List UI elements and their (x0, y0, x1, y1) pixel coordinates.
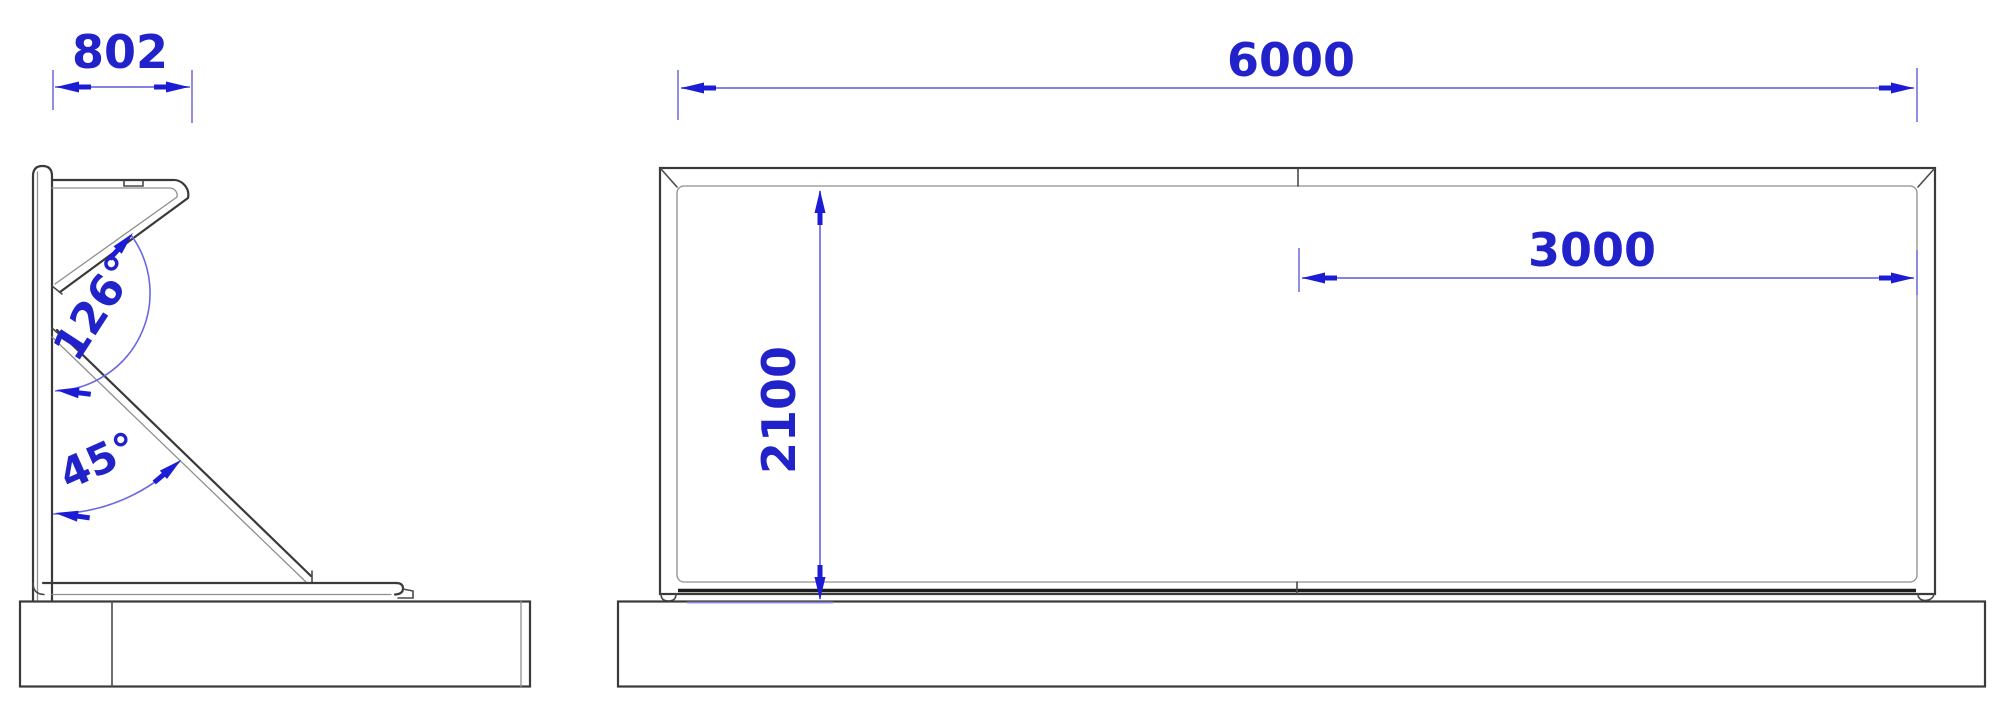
dim-3000-label: 3000 (1528, 223, 1656, 277)
technical-drawing-svg: 802 126° 45° (0, 0, 2000, 705)
dim-802-arrow-right (154, 82, 189, 93)
dim-3000-arrow-right (1879, 273, 1914, 284)
drawing-canvas: 802 126° 45° (0, 0, 2000, 705)
side-foot-end-cap (395, 583, 403, 595)
front-frame-chamfer-topright (1918, 169, 1934, 187)
dim-3000: 3000 (1299, 223, 1917, 295)
dim-6000-arrow-left (681, 83, 716, 94)
front-frame-inner (677, 186, 1917, 582)
dim-802-arrow-left (56, 82, 91, 93)
dim-6000: 6000 (678, 33, 1917, 122)
side-arm-post-joint (52, 286, 62, 294)
side-foot (33, 583, 413, 598)
dim-2100-arrow-top (815, 190, 826, 225)
dim-802-label: 802 (72, 25, 168, 79)
side-post (33, 166, 52, 601)
front-view: 6000 3000 2100 (618, 33, 1985, 687)
dim-126deg-arrow-lower (55, 385, 91, 400)
side-top-arm-clamp-notch (124, 181, 143, 186)
front-frame-outer (660, 168, 1935, 594)
dim-45deg: 45° (52, 422, 185, 523)
side-base-outline (20, 602, 530, 687)
front-frame-chamfer-topleft (661, 169, 677, 187)
front-frame (660, 168, 1935, 601)
dim-45deg-label: 45° (52, 422, 145, 499)
dim-802: 802 (53, 25, 192, 123)
side-foot-post-corner (33, 583, 44, 595)
dim-3000-arrow-left (1302, 273, 1337, 284)
dim-45deg-arrow-lower (54, 508, 90, 524)
side-post-outline (33, 166, 52, 601)
dim-6000-label: 6000 (1227, 33, 1355, 87)
dim-6000-arrow-right (1879, 83, 1914, 94)
front-base-outline (618, 602, 1985, 687)
side-view: 802 126° 45° (20, 25, 530, 687)
dim-126deg-label: 126° (43, 246, 148, 369)
side-base-block (20, 602, 530, 687)
dim-2100: 2100 (687, 190, 833, 603)
dim-2100-label: 2100 (752, 346, 806, 474)
